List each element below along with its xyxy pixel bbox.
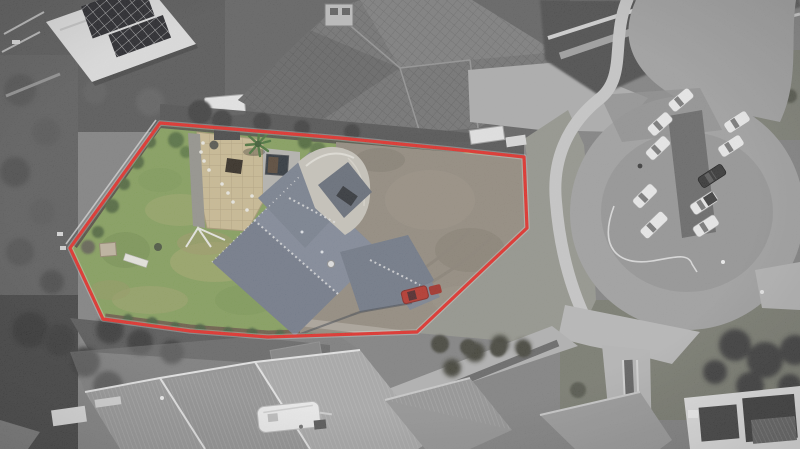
aerial-photo-canvas bbox=[0, 0, 800, 449]
film-grain-overlay bbox=[0, 0, 800, 449]
aerial-photo bbox=[0, 0, 800, 449]
